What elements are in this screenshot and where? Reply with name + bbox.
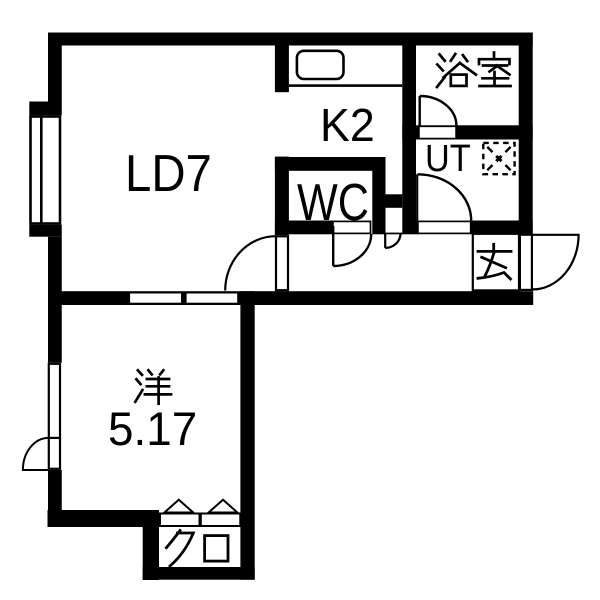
svg-text:5.17: 5.17 xyxy=(108,402,197,455)
svg-text:LD7: LD7 xyxy=(125,145,212,203)
svg-text:UT: UT xyxy=(425,138,471,180)
svg-text:K2: K2 xyxy=(320,99,375,151)
svg-text:WC: WC xyxy=(297,174,369,232)
